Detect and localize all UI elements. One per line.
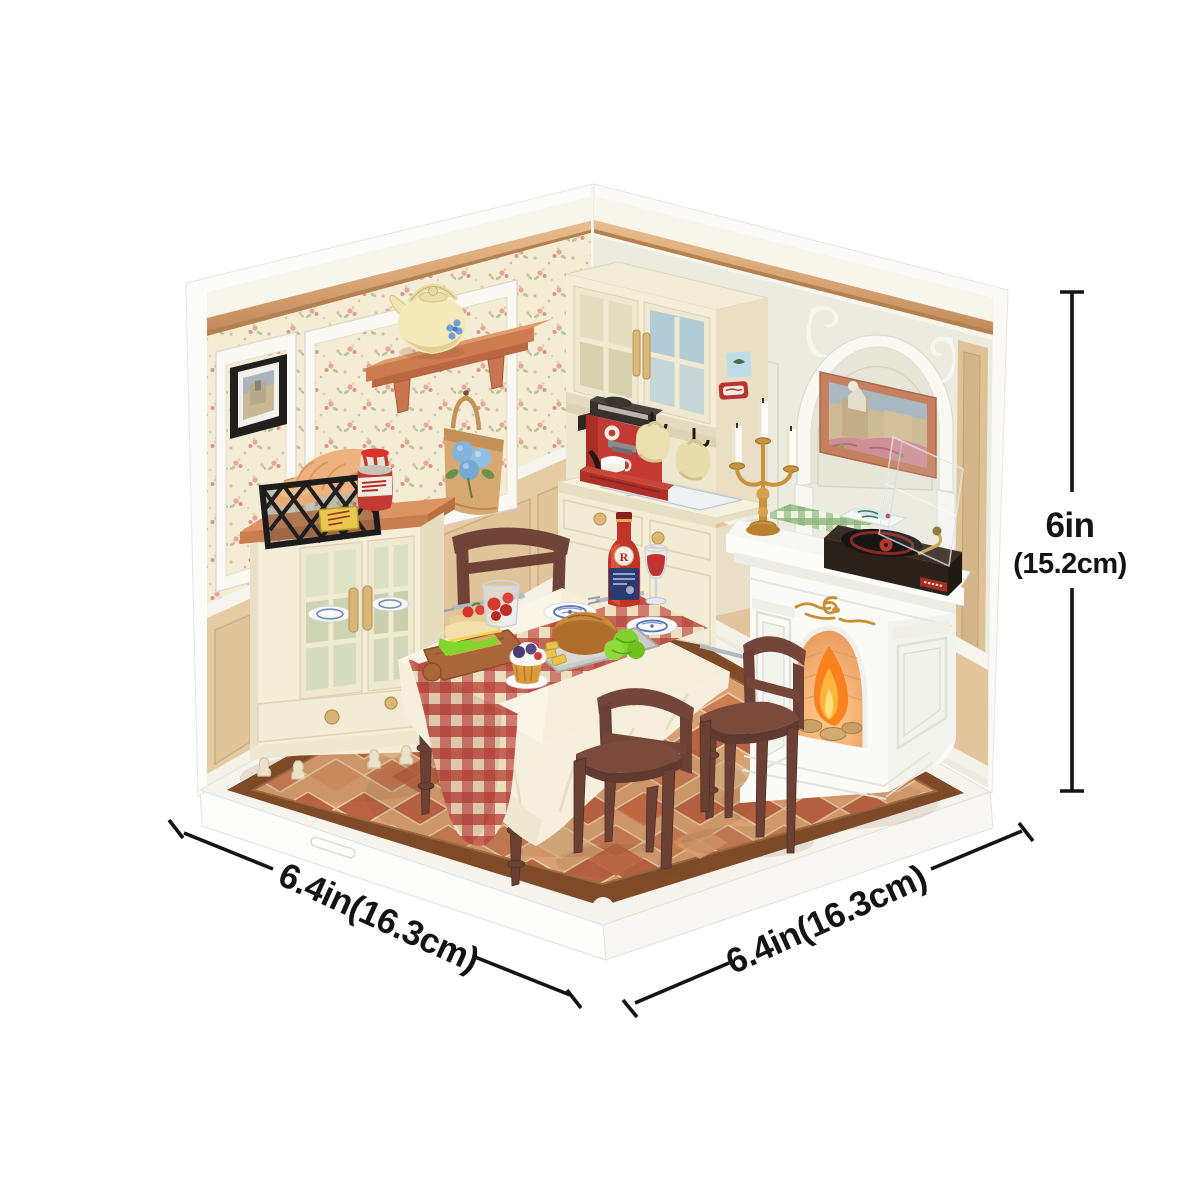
- svg-text:(15.2cm): (15.2cm): [1013, 548, 1127, 580]
- svg-text:6in: 6in: [1045, 506, 1094, 545]
- svg-text:R: R: [620, 550, 629, 564]
